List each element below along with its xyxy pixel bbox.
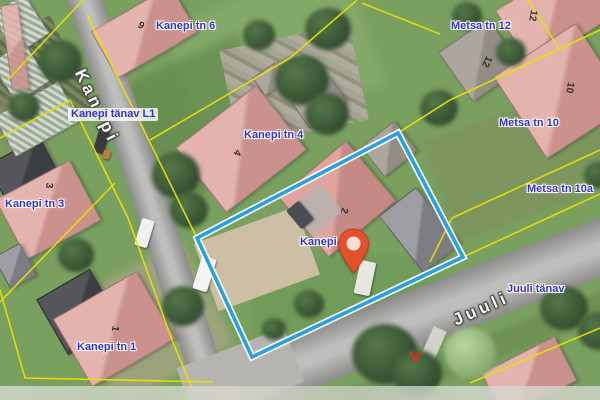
location-marker-icon[interactable]	[337, 228, 370, 275]
address-label: Kanepi tn 4	[244, 129, 303, 141]
address-label: Juuli tänav	[507, 283, 564, 295]
address-label: Kanepi tänav L1	[68, 108, 158, 121]
red-arrow-icon	[408, 351, 423, 362]
address-label: Metsa tn 10	[499, 117, 559, 129]
address-label: Metsa tn 10a	[527, 183, 593, 195]
address-label: Kanepi tn 3	[5, 198, 64, 210]
map-edge-blur	[0, 386, 600, 400]
address-label: Metsa tn 12	[451, 20, 511, 32]
house-number: 10	[563, 81, 576, 94]
boundary-overlay	[0, 0, 600, 400]
cadastral-boundary-lines	[0, 0, 600, 388]
house-number: 12	[526, 9, 539, 22]
address-label: Kanepi tn 1	[77, 341, 136, 353]
address-label: Kanepi tn 6	[156, 20, 215, 32]
aerial-map-canvas[interactable]: Kanepi Juuli 6 4 3 1 2 12 12 10	[0, 0, 600, 400]
house-number: 1	[109, 325, 121, 332]
house-number: 3	[43, 182, 54, 189]
